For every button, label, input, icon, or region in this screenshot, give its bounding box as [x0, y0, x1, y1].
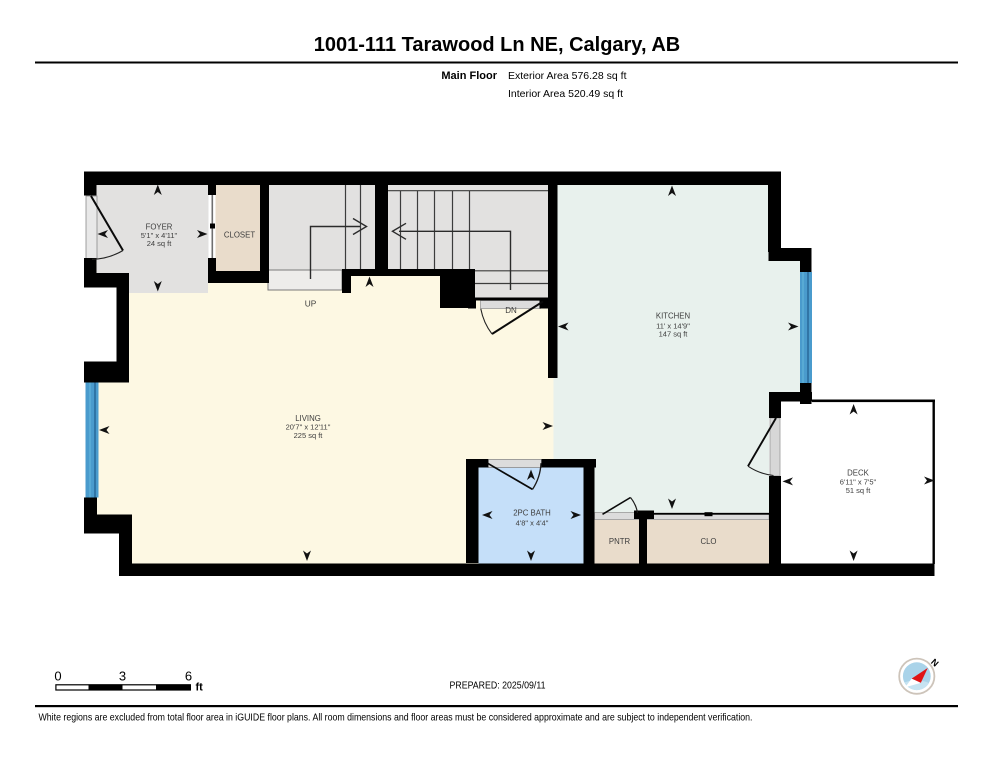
svg-text:PREPARED: 2025/09/11: PREPARED: 2025/09/11 — [450, 680, 546, 691]
svg-text:24 sq ft: 24 sq ft — [147, 239, 173, 248]
svg-text:White regions are excluded fro: White regions are excluded from total fl… — [39, 713, 753, 724]
svg-text:CLO: CLO — [700, 537, 716, 546]
svg-text:147 sq ft: 147 sq ft — [659, 329, 689, 338]
svg-text:225 sq ft: 225 sq ft — [294, 431, 324, 440]
svg-text:1001-111 Tarawood Ln NE, Calga: 1001-111 Tarawood Ln NE, Calgary, AB — [314, 34, 680, 56]
svg-text:KITCHEN: KITCHEN — [656, 312, 690, 321]
svg-text:UP: UP — [305, 299, 317, 309]
svg-text:DECK: DECK — [847, 469, 869, 478]
svg-text:6: 6 — [185, 669, 192, 684]
svg-text:6'11" x 7'5": 6'11" x 7'5" — [840, 477, 877, 486]
svg-text:DN: DN — [505, 306, 517, 315]
svg-text:4'8" x 4'4": 4'8" x 4'4" — [516, 518, 549, 527]
svg-text:Interior Area 520.49 sq ft: Interior Area 520.49 sq ft — [508, 88, 623, 100]
svg-text:Main Floor: Main Floor — [441, 70, 497, 82]
svg-text:CLOSET: CLOSET — [224, 230, 255, 239]
svg-text:ft: ft — [196, 682, 204, 694]
svg-text:3: 3 — [119, 669, 126, 684]
svg-text:Exterior Area 576.28 sq ft: Exterior Area 576.28 sq ft — [508, 70, 627, 82]
svg-text:51 sq ft: 51 sq ft — [846, 486, 872, 495]
svg-text:2PC BATH: 2PC BATH — [513, 509, 551, 518]
svg-text:0: 0 — [54, 669, 61, 684]
svg-text:PNTR: PNTR — [609, 537, 631, 546]
